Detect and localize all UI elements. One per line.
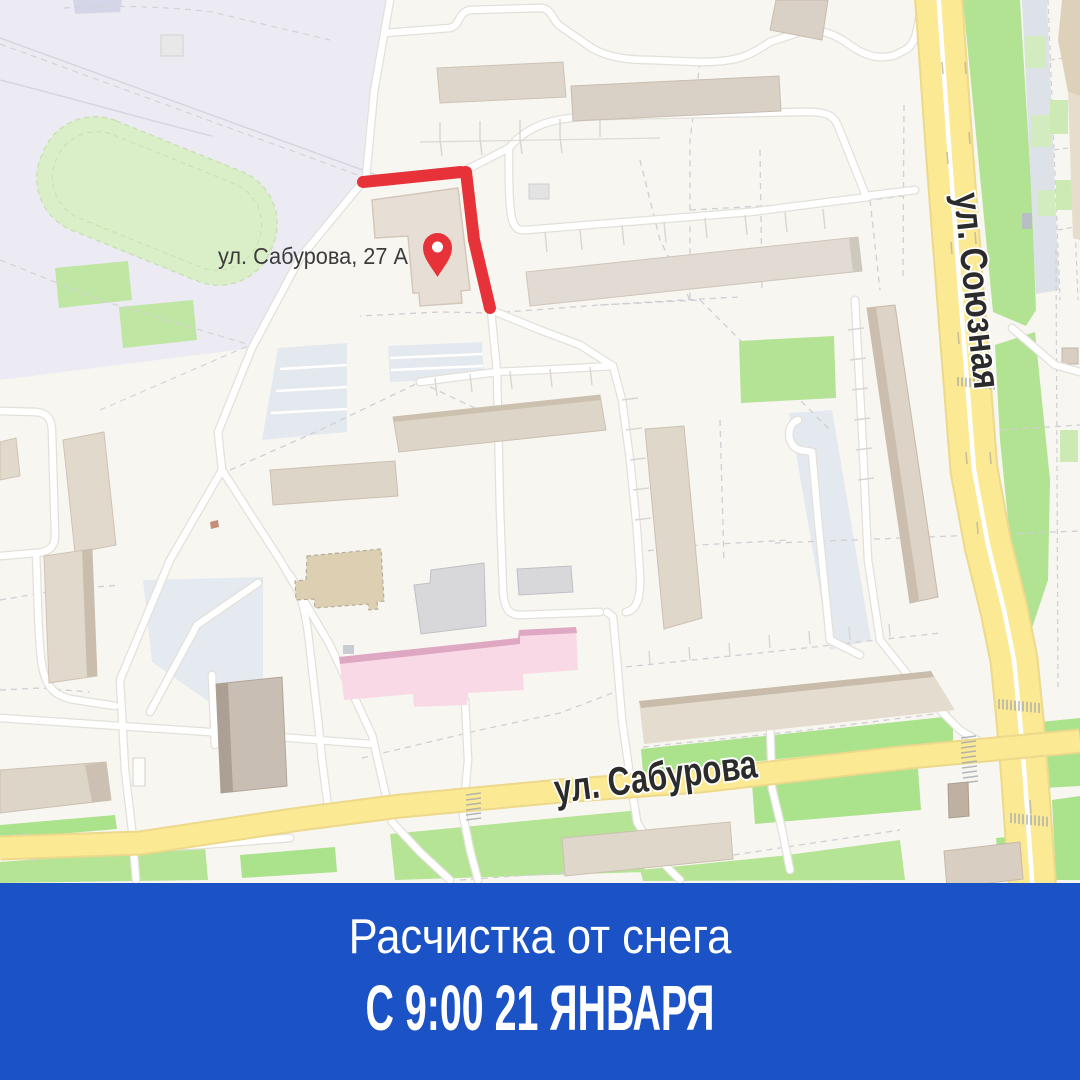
svg-text:ул. Сабурова, 27 А: ул. Сабурова, 27 А xyxy=(218,243,408,269)
